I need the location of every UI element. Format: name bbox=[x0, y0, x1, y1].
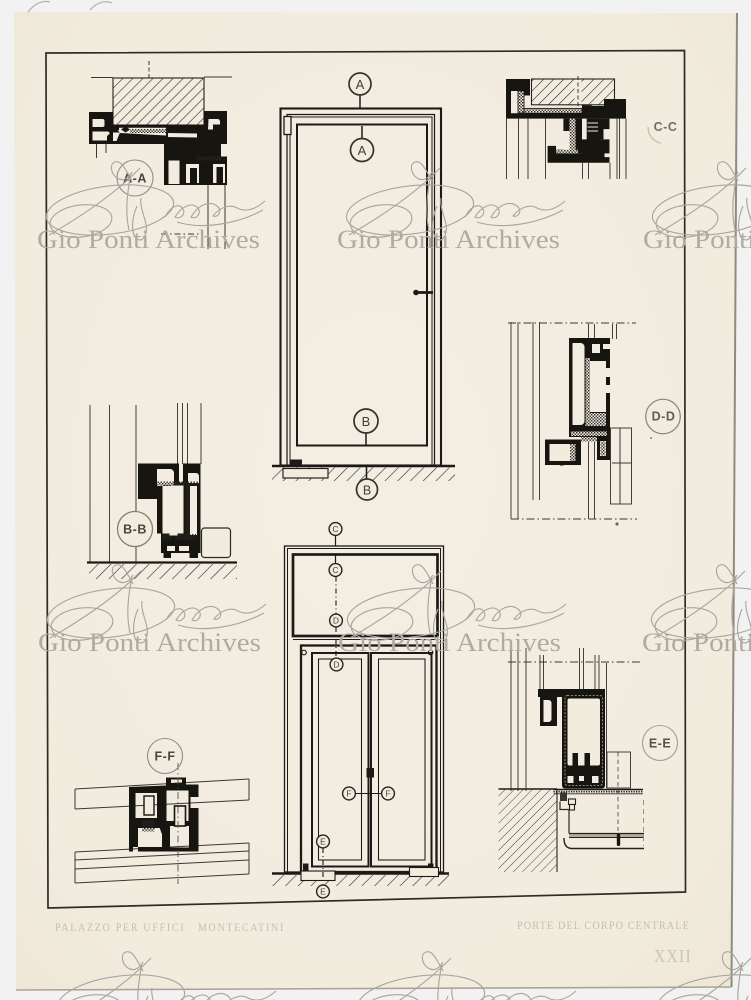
svg-text:XXII: XXII bbox=[654, 946, 692, 966]
svg-text:B-B: B-B bbox=[123, 523, 147, 537]
svg-text:C: C bbox=[332, 565, 338, 575]
svg-text:C: C bbox=[332, 524, 338, 534]
svg-text:F: F bbox=[385, 789, 390, 799]
svg-text:E: E bbox=[320, 887, 326, 897]
svg-text:PORTE DEL CORPO CENTRALE: PORTE DEL CORPO CENTRALE bbox=[517, 920, 690, 932]
svg-text:F: F bbox=[346, 789, 351, 799]
svg-text:PALAZZO PER UFFICI MONTECATI: PALAZZO PER UFFICI MONTECATINI bbox=[55, 922, 285, 934]
svg-text:D: D bbox=[333, 616, 339, 626]
svg-text:B: B bbox=[363, 484, 371, 498]
svg-text:F-F: F-F bbox=[155, 750, 176, 764]
svg-text:B: B bbox=[362, 414, 371, 429]
svg-text:E: E bbox=[320, 837, 326, 847]
svg-text:D: D bbox=[333, 660, 339, 670]
svg-text:D-D: D-D bbox=[652, 410, 676, 424]
svg-text:C-C: C-C bbox=[654, 120, 678, 134]
svg-text:A: A bbox=[356, 77, 365, 92]
svg-text:E-E: E-E bbox=[649, 737, 671, 751]
svg-text:A: A bbox=[358, 143, 367, 158]
